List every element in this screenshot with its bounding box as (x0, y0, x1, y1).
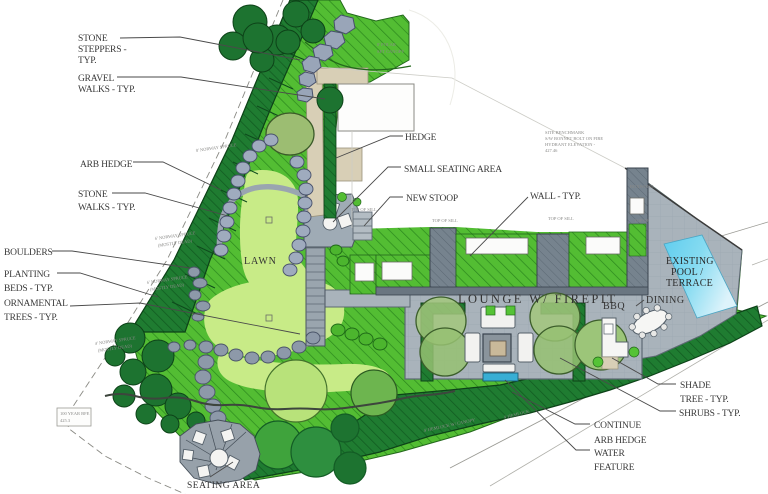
svg-text:SEATING AREA: SEATING AREA (187, 481, 260, 491)
svg-text:WALKS - TYP.: WALKS - TYP. (78, 85, 135, 95)
svg-text:425.3: 425.3 (60, 418, 71, 423)
svg-text:SMALL SEATING AREA: SMALL SEATING AREA (404, 165, 502, 175)
svg-text:S/W BONNET BOLT ON FIRE: S/W BONNET BOLT ON FIRE (545, 136, 603, 141)
svg-text:CONTINUE: CONTINUE (594, 421, 641, 431)
svg-text:ORNAMENTAL: ORNAMENTAL (4, 299, 68, 309)
svg-text:SHADE: SHADE (680, 381, 711, 391)
svg-text:TYP.: TYP. (78, 56, 96, 66)
svg-text:TOP OF SILL: TOP OF SILL (351, 207, 377, 212)
svg-text:ARB HEDGE: ARB HEDGE (594, 436, 647, 446)
svg-text:DINING: DINING (646, 295, 685, 306)
svg-text:NEW STOOP: NEW STOOP (406, 194, 458, 204)
svg-text:EXISTING: EXISTING (666, 256, 714, 267)
svg-text:STONE: STONE (78, 34, 108, 44)
svg-text:STONE: STONE (78, 190, 108, 200)
svg-text:BBQ: BBQ (603, 301, 625, 312)
svg-text:WALKS - TYP.: WALKS - TYP. (78, 203, 135, 213)
svg-text:100 YEAR BFE: 100 YEAR BFE (60, 411, 90, 416)
svg-text:BEDS - TYP.: BEDS - TYP. (4, 284, 53, 294)
svg-text:TREES - TYP.: TREES - TYP. (4, 313, 58, 323)
svg-text:BOXWOOD: BOXWOOD (630, 184, 654, 189)
svg-text:POOL /: POOL / (671, 267, 703, 278)
svg-text:FEATURE: FEATURE (594, 463, 635, 473)
svg-text:SITE BENCHMARK: SITE BENCHMARK (545, 130, 585, 135)
svg-text:GRAVEL: GRAVEL (78, 74, 114, 84)
svg-text:TREE - TYP.: TREE - TYP. (680, 395, 729, 405)
svg-text:ARB HEDGE: ARB HEDGE (80, 160, 133, 170)
svg-text:LOUNGE W/ FIREPIT: LOUNGE W/ FIREPIT (458, 292, 617, 306)
svg-text:TERRACE: TERRACE (666, 278, 713, 289)
svg-text:SET CANOPY: SET CANOPY (377, 49, 405, 54)
svg-text:HYDRANT ELEVATION -: HYDRANT ELEVATION - (545, 142, 596, 147)
svg-text:HEDGE: HEDGE (405, 133, 437, 143)
svg-text:STEPPERS -: STEPPERS - (78, 45, 126, 55)
svg-text:427.46: 427.46 (545, 148, 558, 153)
svg-text:WALL - TYP.: WALL - TYP. (530, 192, 581, 202)
svg-text:SHRUBS - TYP.: SHRUBS - TYP. (679, 409, 740, 419)
svg-text:PLANTING: PLANTING (4, 270, 50, 280)
svg-text:BOULDERS: BOULDERS (4, 248, 53, 258)
svg-text:TOP OF SILL: TOP OF SILL (432, 218, 458, 223)
svg-text:TOP OF SILL: TOP OF SILL (548, 216, 574, 221)
svg-text:WATER: WATER (594, 449, 626, 459)
svg-text:TOP OF: TOP OF (634, 218, 650, 223)
svg-text:8' POLAR: 8' POLAR (377, 42, 396, 47)
svg-text:LAWN: LAWN (244, 256, 277, 267)
